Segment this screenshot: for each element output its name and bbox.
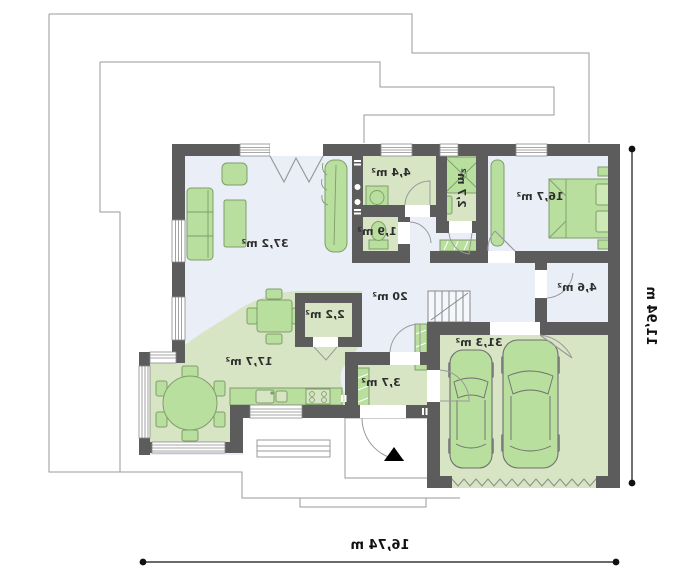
outdoor-step — [257, 440, 330, 457]
window — [172, 220, 185, 262]
sofa — [187, 188, 213, 260]
kitchen-counter — [230, 388, 342, 405]
armchair — [222, 163, 247, 185]
label-storage: 4,6 m² — [557, 281, 597, 294]
label-living-room: 37,2 m² — [241, 237, 288, 250]
label-depth-dimension: 11,94 m — [643, 286, 658, 345]
bed — [549, 179, 611, 238]
dimension-bottom: 16,74 m — [140, 538, 620, 565]
entrance-porch — [257, 418, 433, 478]
car — [501, 340, 560, 468]
floor-plan-canvas: 37,2 m² 17,7 m² 20 m² 2,2 m² 4,4 m² 2,7 … — [0, 0, 700, 576]
window — [250, 405, 302, 418]
window — [240, 144, 270, 156]
window — [440, 144, 458, 156]
label-hall: 20 m² — [372, 290, 408, 303]
label-width-dimension: 16,74 m — [350, 538, 409, 553]
window — [139, 366, 150, 438]
entrance-door — [360, 405, 406, 418]
label-pantry: 2,2 m² — [305, 308, 345, 321]
label-bedroom: 16,7 m² — [516, 190, 563, 203]
plant — [322, 160, 347, 252]
floor-plan-drawing: 37,2 m² 17,7 m² 20 m² 2,2 m² 4,4 m² 2,7 … — [0, 0, 700, 576]
label-garage: 31,3 m² — [455, 336, 502, 349]
stairs — [428, 291, 470, 322]
label-vestibule: 3,7 m² — [361, 376, 401, 389]
label-bathroom: 2,7 m² — [455, 168, 468, 208]
car — [448, 350, 494, 468]
window — [516, 144, 547, 156]
window — [152, 442, 225, 453]
dimension-right: 11,94 m — [629, 146, 658, 487]
garage-gate — [452, 476, 596, 488]
label-wc: 1,9 m² — [357, 225, 397, 238]
label-kitchen-dining: 17,7 m² — [225, 355, 272, 368]
window — [172, 297, 185, 340]
label-laundry: 4,4 m² — [371, 166, 411, 179]
window — [150, 352, 176, 363]
window — [381, 144, 412, 156]
stove — [306, 389, 330, 404]
